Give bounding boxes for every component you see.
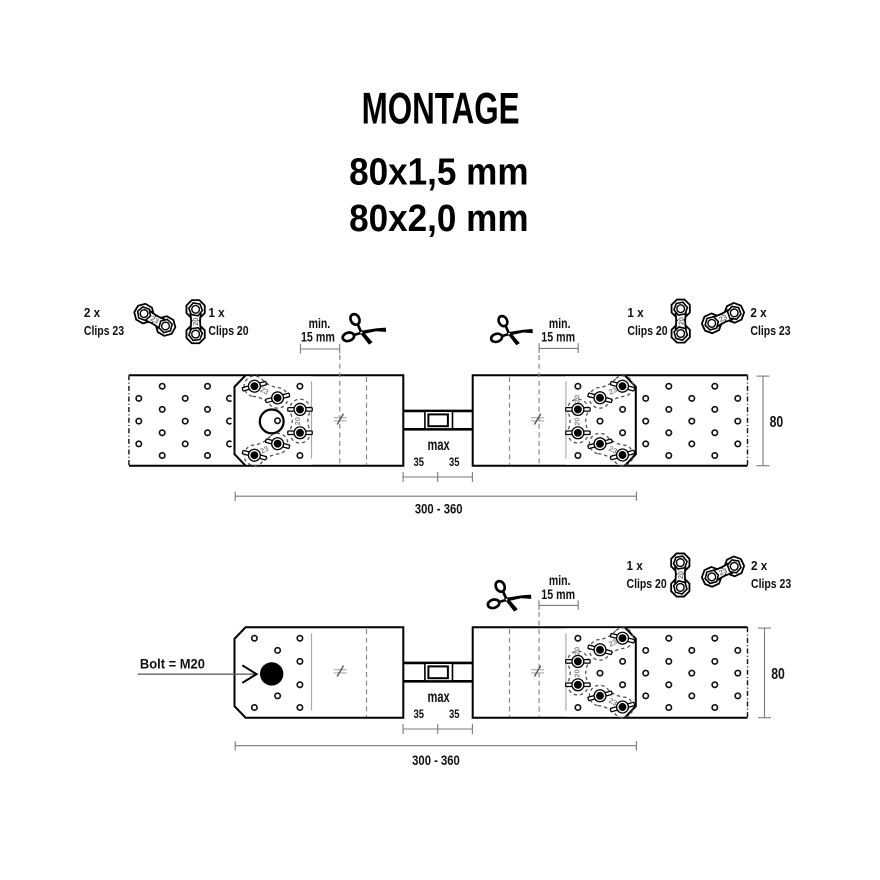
- svg-text:20: 20: [191, 318, 200, 326]
- svg-text:20: 20: [573, 395, 582, 403]
- svg-text:80: 80: [771, 666, 785, 683]
- svg-text:35: 35: [449, 707, 460, 721]
- svg-text:15 mm: 15 mm: [301, 329, 335, 345]
- svg-text:20: 20: [573, 417, 582, 425]
- svg-text:Clips 20: Clips 20: [627, 323, 667, 338]
- svg-text:2 x: 2 x: [84, 305, 101, 320]
- svg-text:20: 20: [293, 417, 302, 425]
- svg-text:20: 20: [573, 669, 582, 677]
- svg-text:Bolt = M20: Bolt = M20: [140, 655, 205, 671]
- svg-text:15 mm: 15 mm: [541, 586, 575, 602]
- svg-text:1 x: 1 x: [627, 305, 644, 320]
- svg-text:Clips 23: Clips 23: [751, 576, 791, 591]
- svg-text:1 x: 1 x: [627, 558, 644, 573]
- svg-text:Clips 23: Clips 23: [84, 323, 124, 338]
- svg-text:Clips 23: Clips 23: [750, 323, 790, 338]
- svg-text:300 - 360: 300 - 360: [415, 502, 463, 517]
- svg-text:Clips 20: Clips 20: [627, 576, 667, 591]
- svg-text:35: 35: [449, 455, 460, 469]
- svg-text:20: 20: [676, 317, 685, 325]
- svg-text:MONTAGE: MONTAGE: [362, 84, 520, 133]
- svg-text:2 x: 2 x: [750, 305, 767, 320]
- svg-text:20: 20: [573, 647, 582, 655]
- svg-text:Clips 20: Clips 20: [208, 323, 248, 338]
- svg-text:max: max: [428, 689, 450, 706]
- svg-text:max: max: [428, 437, 450, 454]
- svg-text:35: 35: [413, 707, 424, 721]
- svg-text:300 - 360: 300 - 360: [412, 753, 460, 768]
- svg-text:80x2,0 mm: 80x2,0 mm: [349, 198, 528, 240]
- svg-text:35: 35: [413, 455, 424, 469]
- svg-text:2 x: 2 x: [751, 558, 768, 573]
- svg-text:15 mm: 15 mm: [541, 329, 575, 345]
- svg-text:20: 20: [676, 571, 685, 579]
- svg-text:1 x: 1 x: [208, 305, 225, 320]
- svg-text:80x1,5 mm: 80x1,5 mm: [349, 152, 528, 194]
- svg-text:80: 80: [770, 414, 784, 431]
